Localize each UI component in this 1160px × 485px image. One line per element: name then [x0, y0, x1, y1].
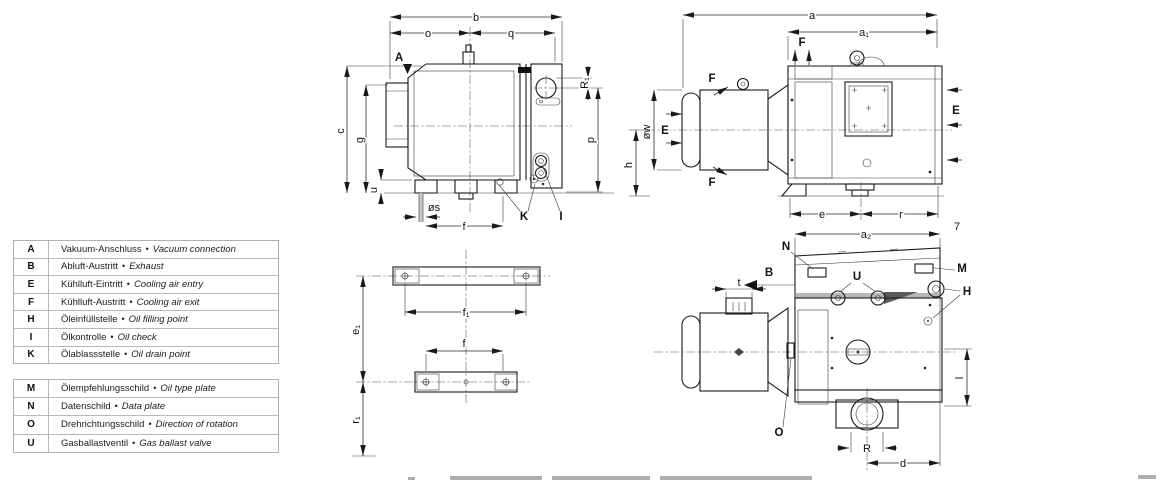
air-entry-label-left: E — [661, 125, 669, 137]
air-exit-label-motor-top: F — [708, 73, 715, 85]
legend-bullet: • — [115, 401, 118, 411]
pump-body-front — [408, 64, 520, 180]
legend-de: Abluft-Austritt — [61, 261, 118, 272]
legend-en: Exhaust — [129, 261, 163, 272]
legend-de: Kühlluft-Austritt — [61, 297, 125, 308]
port-label-i: I — [559, 211, 562, 223]
legend-key: H — [14, 311, 49, 328]
legend-en: Oil check — [118, 332, 157, 343]
legend-key: U — [14, 435, 49, 452]
legend-key: F — [14, 294, 49, 311]
dim-label-t: t — [737, 277, 740, 289]
legend-de: Gasballastventil — [61, 438, 128, 449]
legend-en: Cooling air exit — [137, 297, 200, 308]
legend-de: Ölempfehlungsschild — [61, 383, 149, 394]
corner-mark — [518, 67, 531, 73]
exhaust-label-b: B — [765, 267, 773, 279]
port-label-k: K — [520, 211, 529, 223]
dim-label-u: u — [368, 187, 380, 193]
legend-row: NDatenschild•Data plate — [14, 397, 278, 415]
dim-label-l: l — [954, 377, 966, 379]
legend-row: AVakuum-Anschluss•Vacuum connection — [14, 241, 278, 258]
legend-en: Vacuum connection — [153, 244, 236, 255]
legend-bullet: • — [127, 279, 130, 289]
footprint-view: f₁ f e₁ r₁ — [350, 250, 550, 456]
legend-key: K — [14, 347, 49, 364]
catalog-dimension-page: b o q A c g u p R₁ øs f K I — [0, 0, 1160, 480]
legend-key: N — [14, 398, 49, 415]
dim-label-port-r: R — [863, 443, 871, 455]
legend-en: Direction of rotation — [156, 419, 238, 430]
dim-label-d: d — [900, 458, 906, 470]
legend-bullet: • — [132, 438, 135, 448]
legend-de: Ölkontrolle — [61, 332, 106, 343]
legend-row: KÖlablassstelle•Oil drain point — [14, 346, 278, 364]
legend-en: Oil drain point — [131, 349, 190, 360]
rotation-label-o: O — [775, 427, 784, 439]
page-mark: 7 — [954, 221, 960, 233]
legend-row: BAbluft-Austritt•Exhaust — [14, 258, 278, 276]
dim-label-r: r — [899, 209, 903, 221]
legend-row: EKühlluft-Eintritt•Cooling air entry — [14, 275, 278, 293]
legend-bullet: • — [146, 244, 149, 254]
legend-key: O — [14, 416, 49, 433]
air-entry-label-right: E — [952, 105, 960, 117]
dim-label-r1: R₁ — [579, 77, 591, 89]
legend-de: Kühlluft-Eintritt — [61, 279, 123, 290]
dim-label-ow: øw — [641, 125, 653, 140]
air-exit-label-top: F — [798, 37, 805, 49]
dim-label-g: g — [354, 137, 366, 143]
dim-label-b: b — [473, 12, 479, 24]
dim-label-e: e — [819, 209, 825, 221]
oil-type-plate — [915, 264, 933, 273]
data-plate — [808, 268, 826, 277]
dim-label-foot-r1: r₁ — [350, 416, 362, 424]
dim-label-c: c — [335, 128, 347, 134]
legend-bullet: • — [122, 314, 125, 324]
legend-de: Vakuum-Anschluss — [61, 244, 142, 255]
legend-row: IÖlkontrolle•Oil check — [14, 328, 278, 346]
front-view: b o q A c g u p R₁ øs f K I — [335, 12, 614, 233]
legend-de: Datenschild — [61, 401, 111, 412]
legend-bullet: • — [110, 332, 113, 342]
dim-label-os: øs — [428, 202, 441, 214]
legend-key: A — [14, 241, 49, 258]
legend-bullet: • — [129, 297, 132, 307]
legend-row: MÖlempfehlungsschild•Oil type plate — [14, 380, 278, 397]
dim-label-a2: a₂ — [861, 229, 871, 241]
exhaust-arrow — [744, 280, 757, 290]
legend-key: M — [14, 380, 49, 397]
side-view-motor: a a₁ F E øw — [623, 10, 962, 233]
side-view-service: a₂ — [654, 229, 972, 470]
pump-body-service — [795, 298, 942, 390]
legend-key: E — [14, 276, 49, 293]
dim-label-f: f — [462, 221, 466, 233]
oil-check-plug — [536, 156, 547, 167]
vacuum-flange — [386, 83, 408, 147]
legend-table-plates: MÖlempfehlungsschild•Oil type plate NDat… — [13, 379, 279, 453]
legend-key: B — [14, 259, 49, 276]
dim-label-e1: e₁ — [350, 325, 362, 335]
legend-en: Gas ballast valve — [139, 438, 211, 449]
legend-bullet: • — [122, 261, 125, 271]
legend-en: Data plate — [122, 401, 165, 412]
legend-row: HÖleinfüllstelle•Oil filling point — [14, 310, 278, 328]
legend-row: FKühlluft-Austritt•Cooling air exit — [14, 293, 278, 311]
legend-bullet: • — [148, 419, 151, 429]
legend-de: Ölablassstelle — [61, 349, 120, 360]
dim-label-a1: a₁ — [859, 27, 869, 39]
legend-table-connections: AVakuum-Anschluss•Vacuum connection BAbl… — [13, 240, 279, 364]
dim-label-a: a — [809, 10, 816, 22]
legend-row: UGasballastventil•Gas ballast valve — [14, 434, 278, 452]
legend-en: Oil type plate — [160, 383, 215, 394]
legend-bullet: • — [124, 349, 127, 359]
data-plate-label-n: N — [782, 241, 790, 253]
dim-label-q: q — [508, 28, 514, 40]
port-label-a: A — [395, 52, 403, 64]
legend-de: Öleinfüllstelle — [61, 314, 118, 325]
vacuum-arrow — [403, 64, 412, 74]
oil-plate-label-m: M — [957, 263, 967, 275]
legend-bullet: • — [153, 383, 156, 393]
gas-ballast-label-u: U — [853, 271, 861, 283]
legend-en: Oil filling point — [129, 314, 188, 325]
dim-label-o: o — [425, 28, 431, 40]
dim-label-h: h — [623, 162, 635, 168]
dim-label-f1: f₁ — [463, 307, 470, 319]
oil-fill-label-h: H — [963, 286, 971, 298]
air-exit-label-motor-bottom: F — [708, 177, 715, 189]
legend-key: I — [14, 329, 49, 346]
legend-de: Drehrichtungsschild — [61, 419, 144, 430]
legend-row: ODrehrichtungsschild•Direction of rotati… — [14, 415, 278, 433]
dim-label-p: p — [585, 137, 597, 143]
legend-en: Cooling air entry — [134, 279, 203, 290]
cooling-fins-front — [414, 71, 514, 176]
